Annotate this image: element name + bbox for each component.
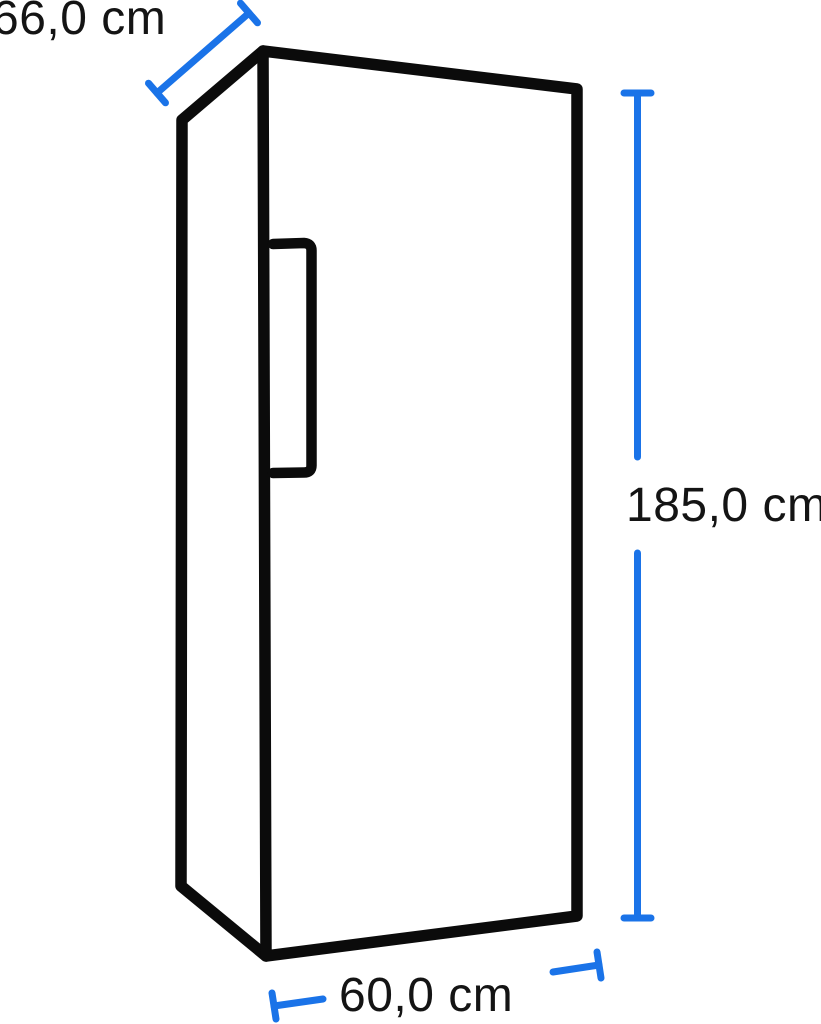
fridge-front-face bbox=[263, 51, 577, 956]
fridge-side-face bbox=[181, 51, 266, 956]
width-dimension-label: 60,0 cm bbox=[339, 968, 513, 1023]
depth-dimension-label: 66,0 cm bbox=[0, 0, 166, 46]
height-dimension-label: 185,0 cm bbox=[626, 478, 821, 533]
product-dimension-diagram: 66,0 cm 185,0 cm 60,0 cm bbox=[0, 0, 821, 1024]
